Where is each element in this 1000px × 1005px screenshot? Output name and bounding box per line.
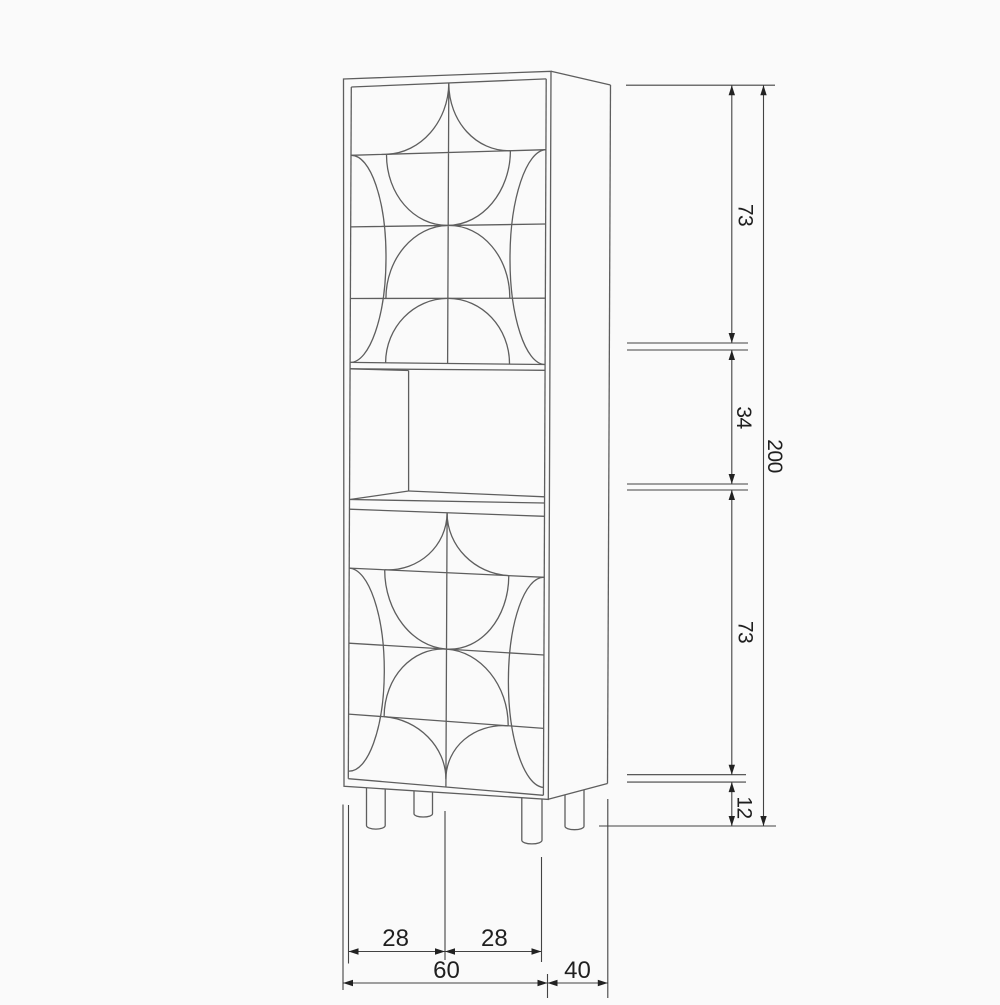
svg-text:12: 12 bbox=[733, 796, 756, 818]
svg-text:40: 40 bbox=[564, 957, 591, 984]
svg-text:28: 28 bbox=[481, 925, 508, 952]
svg-text:73: 73 bbox=[734, 204, 757, 226]
svg-text:34: 34 bbox=[732, 406, 755, 429]
svg-text:73: 73 bbox=[734, 621, 757, 643]
svg-text:28: 28 bbox=[382, 925, 409, 952]
svg-text:60: 60 bbox=[433, 957, 460, 984]
svg-text:200: 200 bbox=[763, 439, 786, 473]
